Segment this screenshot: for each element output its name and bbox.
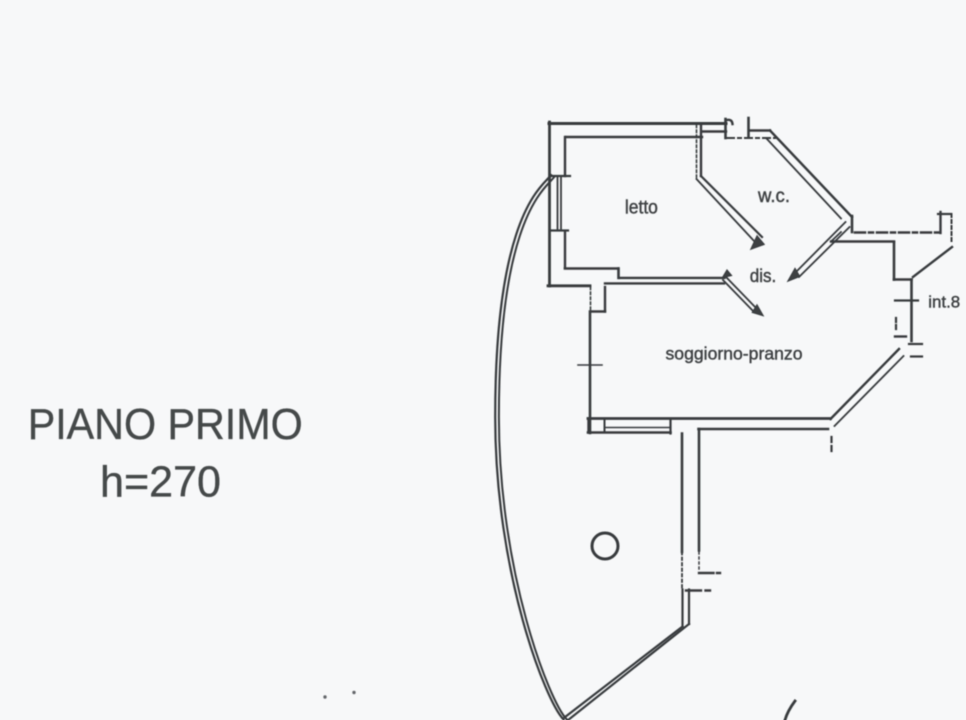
svg-text:h=270: h=270	[100, 458, 221, 507]
svg-text:int.8: int.8	[928, 293, 960, 312]
svg-text:w.c.: w.c.	[757, 186, 790, 207]
svg-text:dis.: dis.	[750, 266, 777, 286]
svg-text:PIANO PRIMO: PIANO PRIMO	[28, 400, 303, 449]
svg-text:letto: letto	[625, 198, 658, 219]
svg-text:soggiorno-pranzo: soggiorno-pranzo	[666, 344, 803, 364]
